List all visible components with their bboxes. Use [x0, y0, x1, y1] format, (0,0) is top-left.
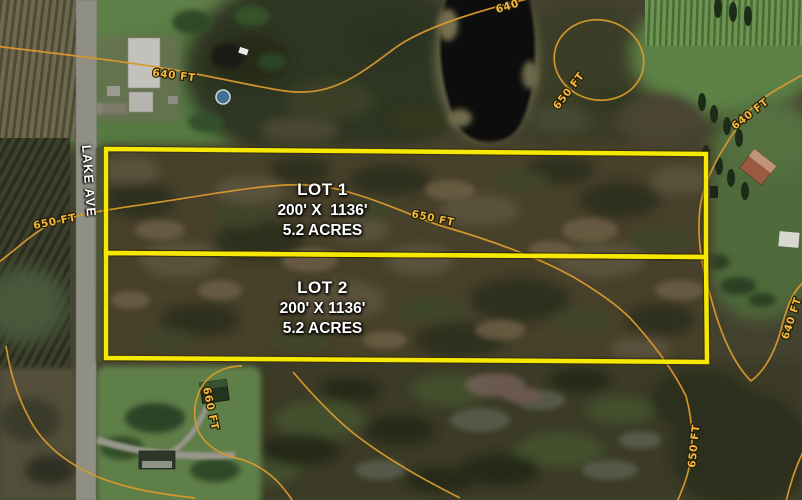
- tree-clump: [257, 53, 287, 71]
- tree-clump: [720, 277, 756, 295]
- vehicle: [710, 186, 718, 198]
- building: [139, 451, 175, 469]
- building: [129, 92, 153, 112]
- vineyard-rows: [0, 0, 76, 138]
- woods-patch: [390, 106, 450, 134]
- satellite-basemap: 640 640 FT 650 FT 640 FT 650 FT 650 FT 6…: [0, 0, 802, 500]
- woods-patch: [618, 94, 702, 146]
- tree-clump: [234, 6, 270, 26]
- farm-pond: [211, 43, 245, 69]
- building: [107, 86, 120, 96]
- tree-clump: [172, 10, 212, 34]
- lawn: [96, 366, 261, 500]
- bottom-woodland-texture: [220, 360, 802, 500]
- pond-shore: [448, 109, 472, 127]
- building: [168, 96, 178, 104]
- pool: [216, 90, 230, 104]
- pond-shore: [522, 61, 538, 89]
- tree-clump: [188, 112, 224, 132]
- vineyard-rows: [645, 0, 802, 46]
- tree-clump: [190, 458, 240, 482]
- building: [778, 231, 799, 248]
- parcel-map: 640 640 FT 650 FT 640 FT 650 FT 650 FT 6…: [0, 0, 802, 500]
- woods-patch: [285, 80, 375, 120]
- tree-clump: [748, 293, 776, 307]
- woods-patch: [260, 115, 340, 145]
- tree-clump: [125, 403, 185, 433]
